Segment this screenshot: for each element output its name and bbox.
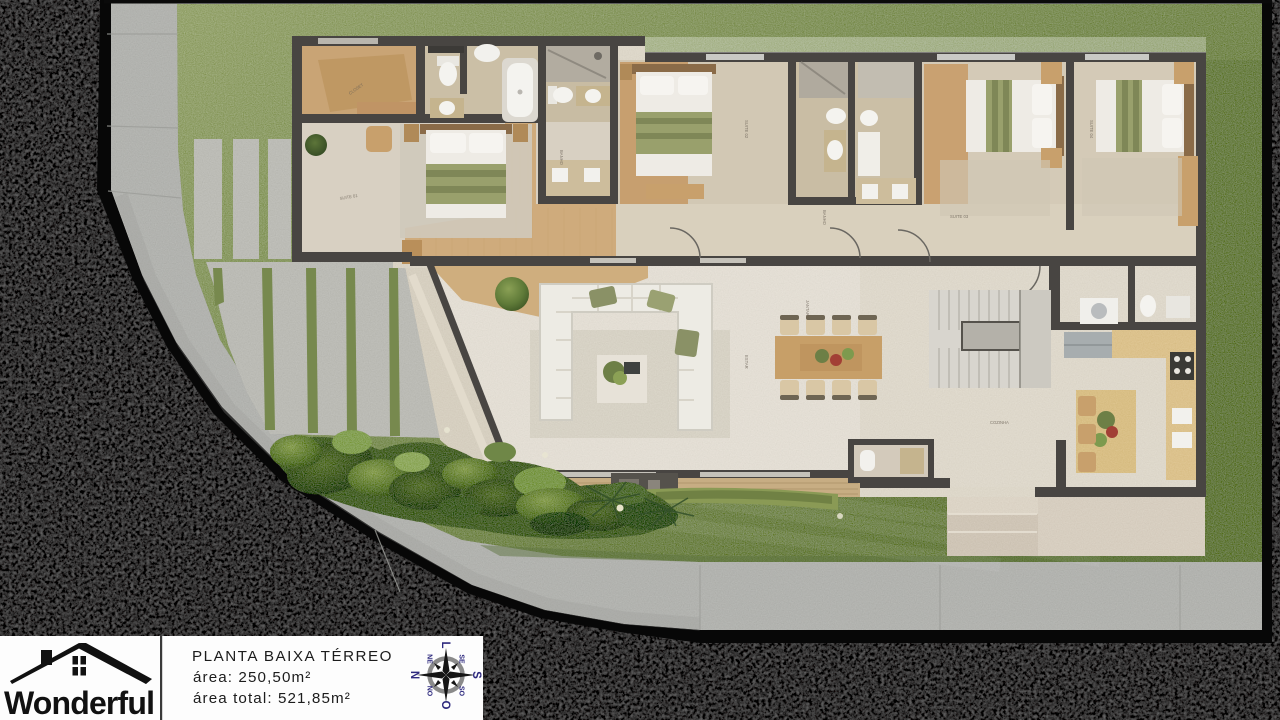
- svg-text:N: N: [408, 671, 420, 679]
- svg-text:área total: 521,85m²: área total: 521,85m²: [193, 690, 351, 707]
- svg-text:O: O: [439, 701, 451, 710]
- svg-text:SUITE 02: SUITE 02: [744, 120, 749, 139]
- svg-text:área: 250,50m²: área: 250,50m²: [193, 669, 311, 686]
- svg-text:BANHO: BANHO: [822, 210, 827, 226]
- svg-text:JANTAR: JANTAR: [805, 300, 810, 316]
- svg-text:L: L: [439, 641, 451, 648]
- svg-text:NE: NE: [426, 654, 433, 664]
- svg-text:S: S: [470, 671, 482, 679]
- svg-text:NO: NO: [426, 686, 433, 697]
- svg-text:ESTAR: ESTAR: [744, 355, 749, 369]
- svg-text:SUITE 03: SUITE 03: [950, 214, 969, 219]
- svg-text:PLANTA BAIXA TÉRREO: PLANTA BAIXA TÉRREO: [192, 648, 393, 665]
- svg-text:SE: SE: [458, 654, 465, 664]
- svg-text:BANHO: BANHO: [559, 150, 564, 166]
- svg-text:SO: SO: [458, 686, 465, 697]
- svg-text:COZINHA: COZINHA: [990, 420, 1009, 425]
- svg-text:Wonderful: Wonderful: [4, 685, 155, 720]
- svg-text:SUITE 04: SUITE 04: [1089, 120, 1094, 139]
